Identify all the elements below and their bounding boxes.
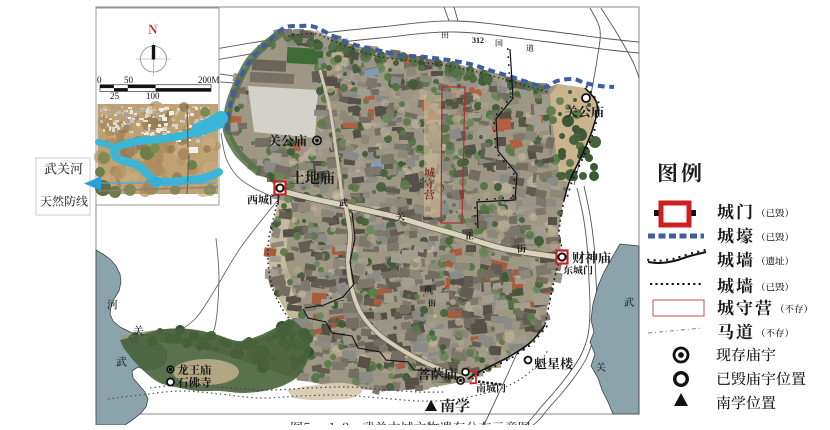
svg-text:0: 0 bbox=[97, 75, 102, 85]
svg-text:100: 100 bbox=[146, 91, 160, 101]
svg-text:25: 25 bbox=[110, 91, 120, 101]
svg-text:312: 312 bbox=[472, 36, 484, 45]
svg-text:50: 50 bbox=[124, 75, 134, 85]
svg-text:200M: 200M bbox=[198, 75, 220, 85]
